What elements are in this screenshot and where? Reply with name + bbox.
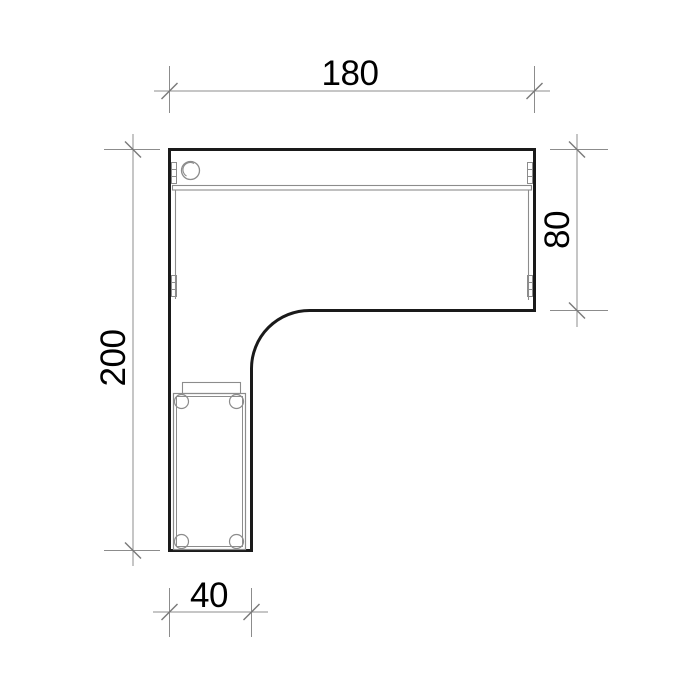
dimension-bottom-leg: 40 [153, 576, 268, 637]
dimension-label-top: 180 [322, 54, 379, 93]
dimension-label-left: 200 [94, 330, 133, 387]
desk-outline [170, 150, 535, 551]
dimension-left-height: 200 [94, 134, 160, 566]
dimension-label-right: 80 [538, 211, 577, 249]
dimension-right-depth: 80 [538, 134, 608, 327]
drawing-canvas: 180 200 80 40 [0, 0, 700, 700]
dimension-top-width: 180 [154, 54, 550, 113]
dimension-label-bottom: 40 [190, 576, 228, 615]
desk-plan-drawing: 180 200 80 40 [0, 0, 700, 700]
